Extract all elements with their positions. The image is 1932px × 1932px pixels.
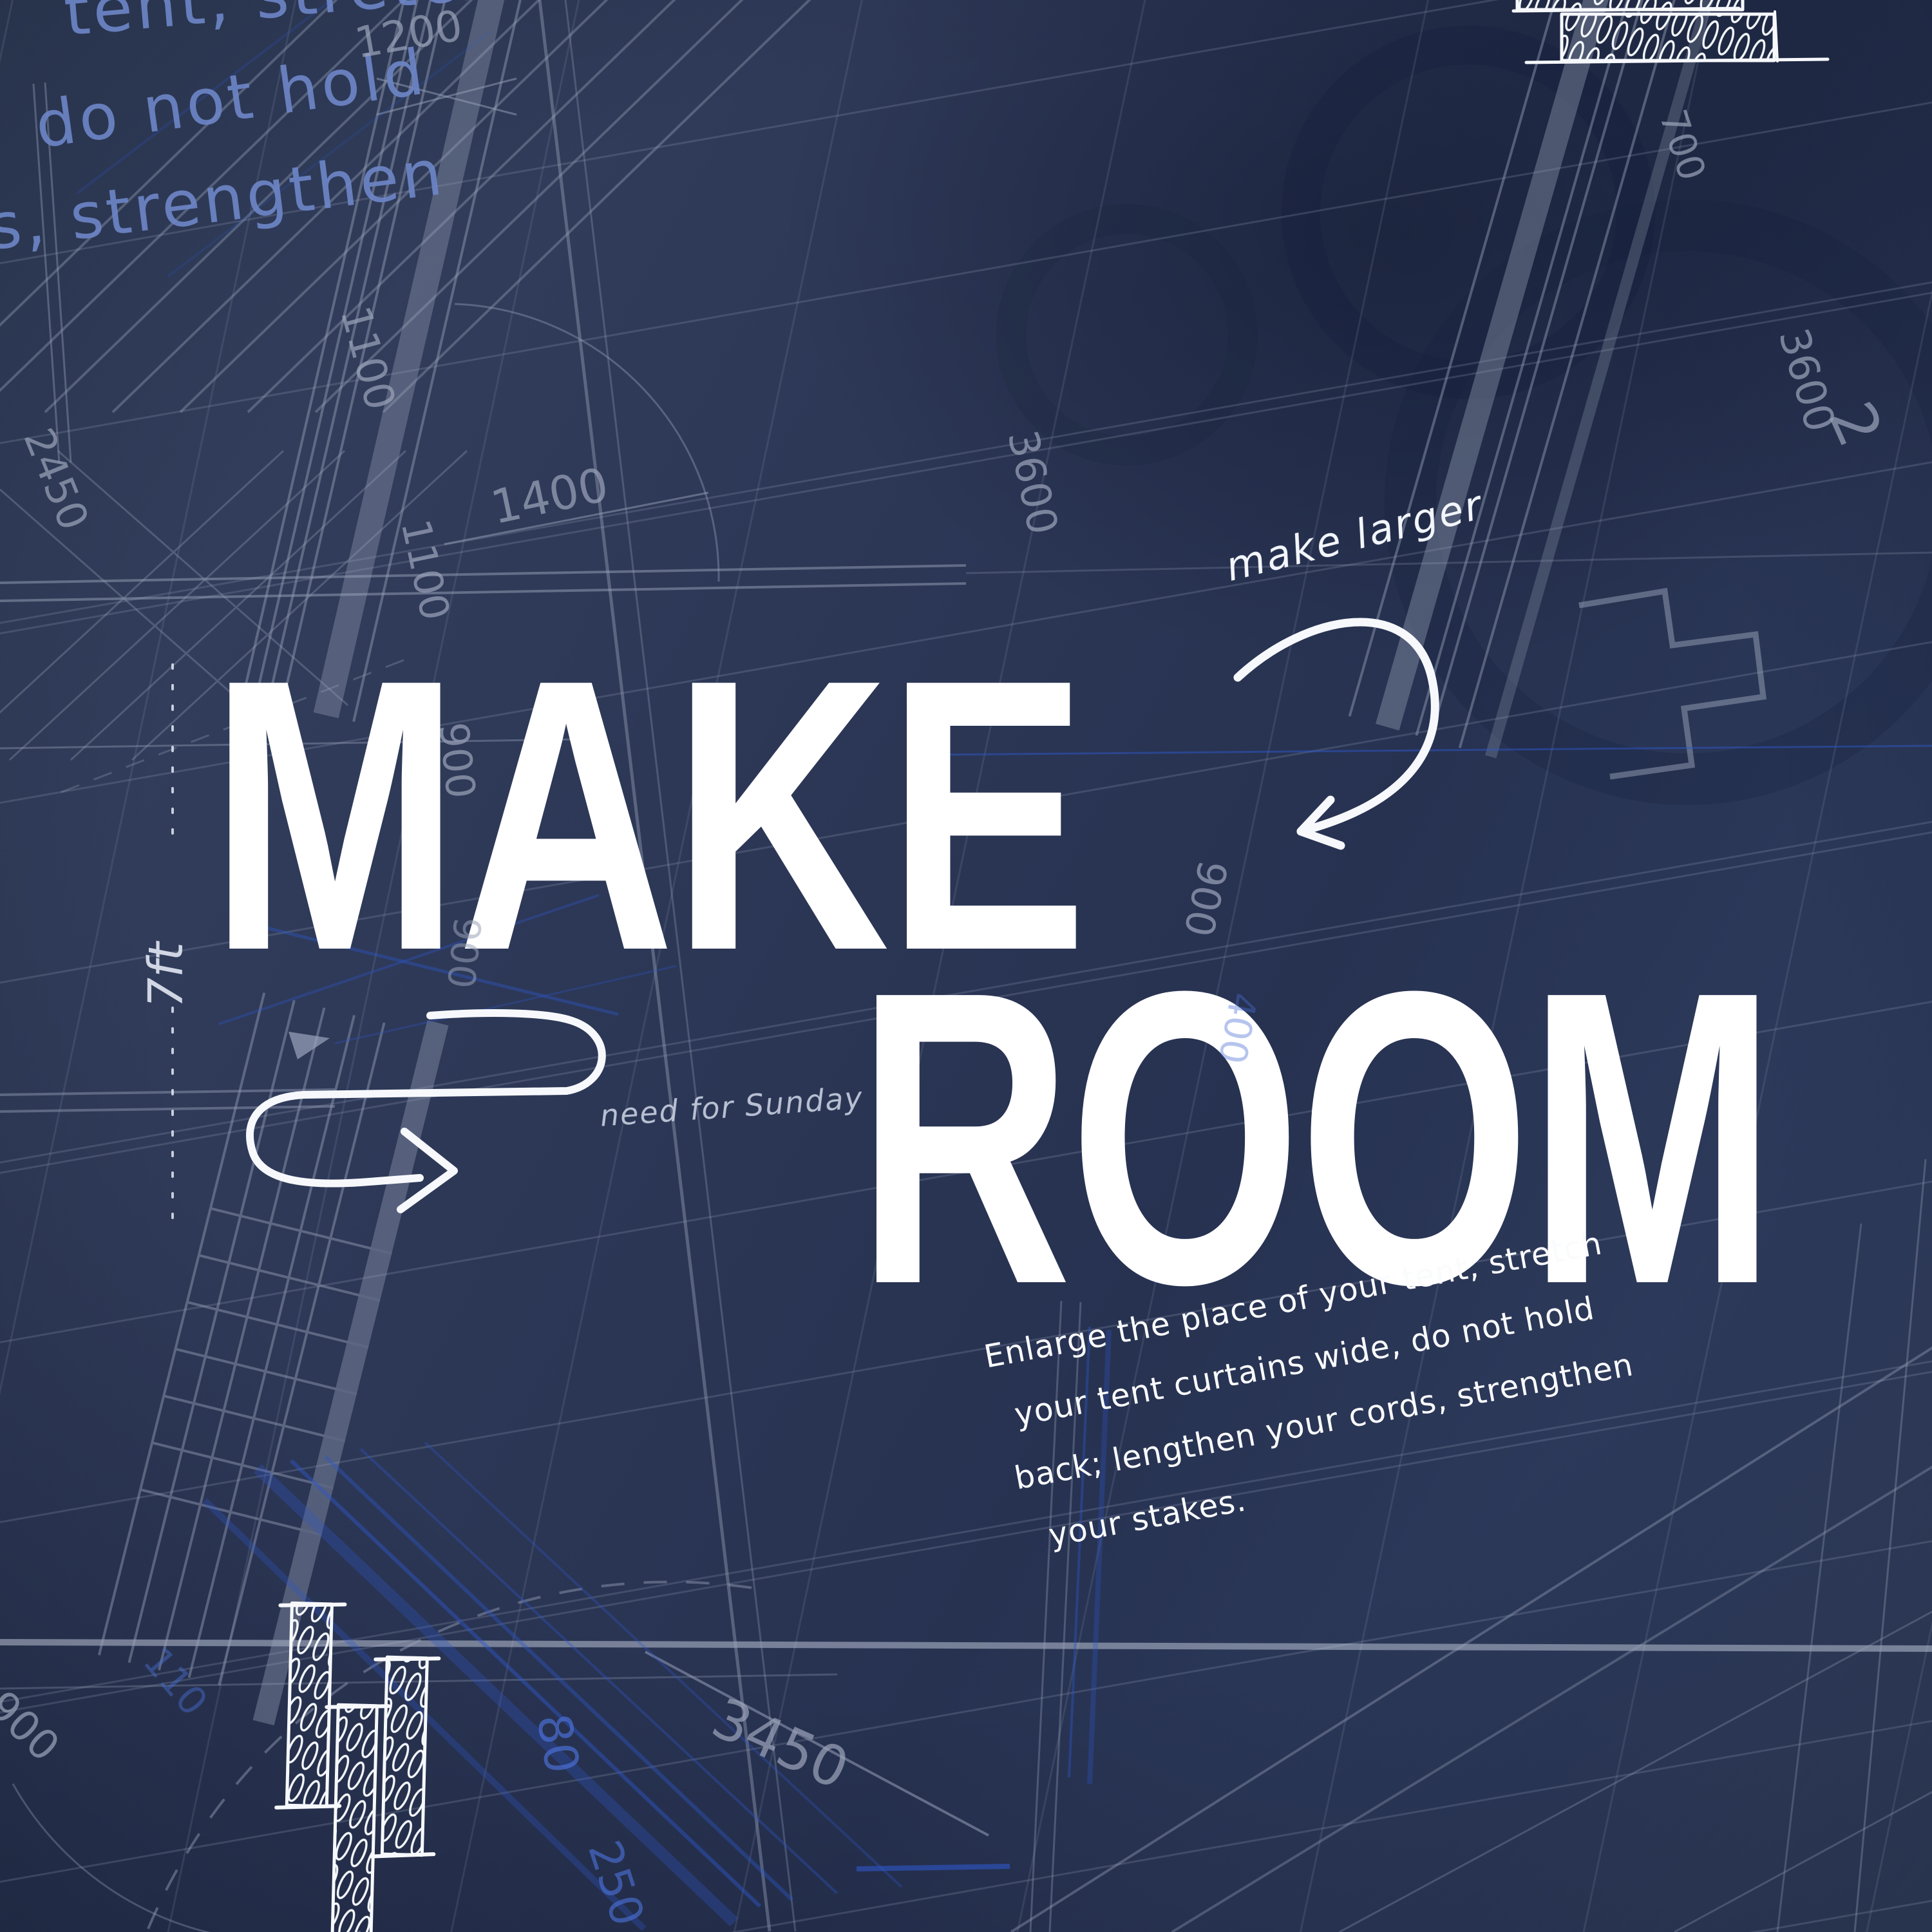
hatched-box-top-right-1	[1513, 0, 1743, 11]
hatched-box-top-right-2	[1526, 12, 1828, 62]
dim-900-lower: 900	[439, 915, 489, 990]
poster-canvas: MAKE ROOM make larger need for Sunday 7f…	[0, 0, 1932, 1932]
dim-900-upper: 900	[430, 720, 484, 800]
title-room: ROOM	[857, 976, 1774, 1301]
hatched-bar-3	[370, 1657, 439, 1858]
hatched-bar-2	[320, 1705, 388, 1932]
annotation-seven-ft: 7ft	[138, 866, 194, 1008]
dim-80-blue: 80	[526, 1710, 590, 1777]
small-gray-arrow	[289, 1032, 330, 1059]
